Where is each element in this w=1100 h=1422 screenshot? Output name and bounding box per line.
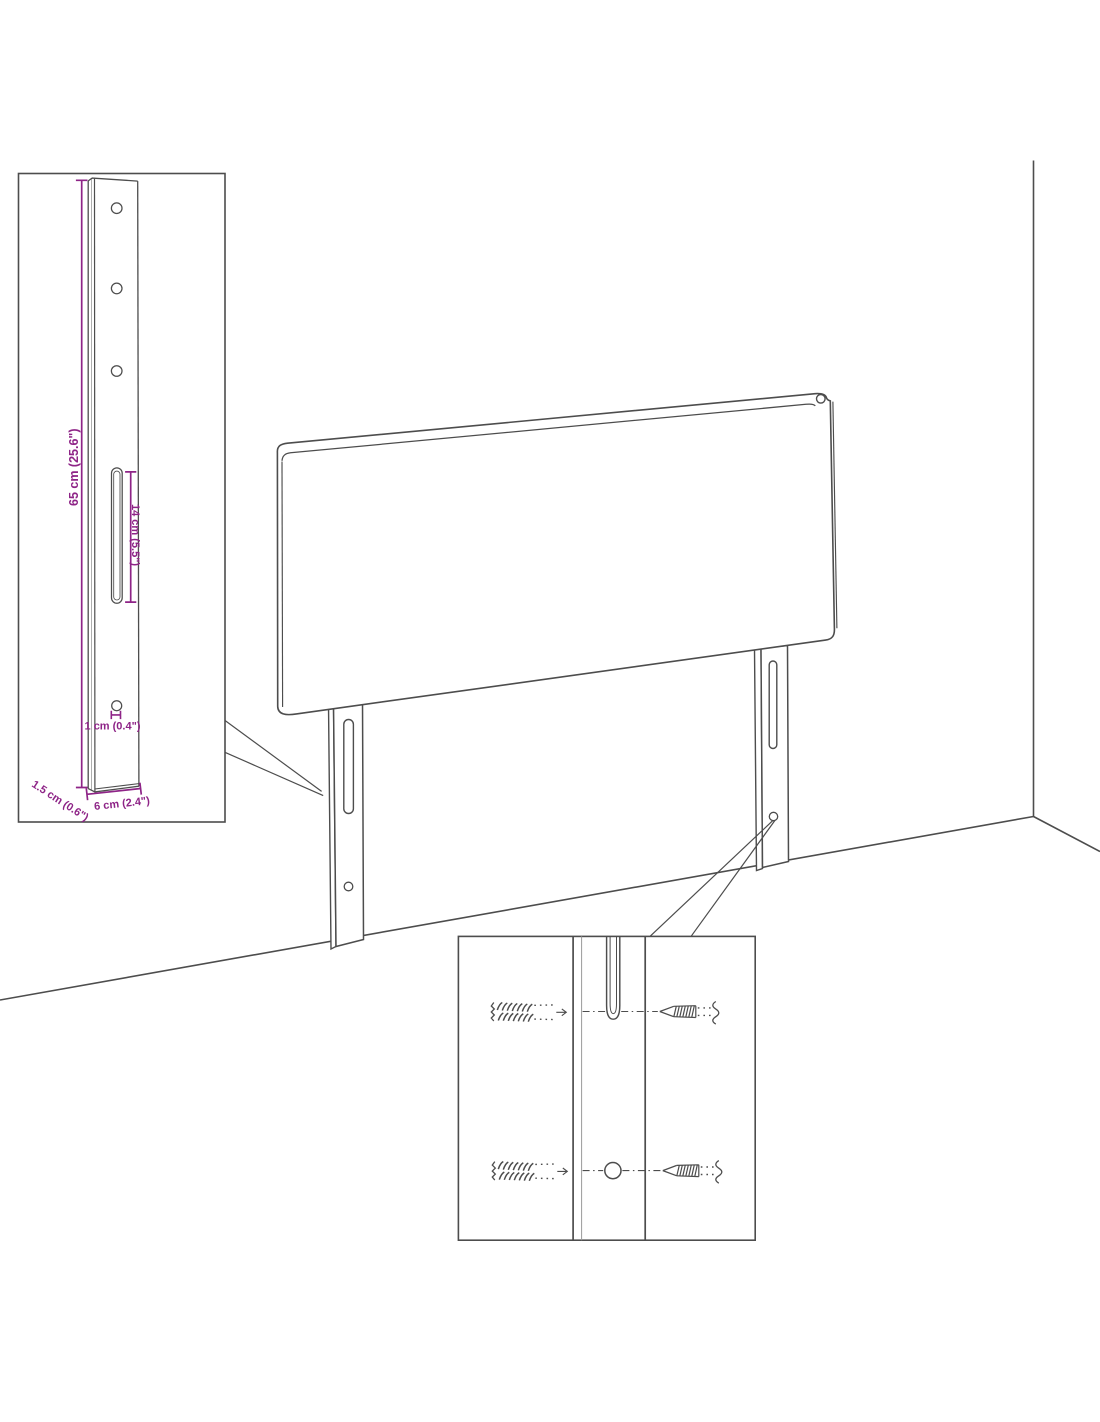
headboard-left-edge-inner [282,462,283,708]
headboard-top-right-curl [817,395,826,404]
left-leg-hole [344,882,353,891]
total-height-label: 65 cm (25.6") [67,429,81,507]
right-leg-hole [769,812,777,820]
leg-hole-1 [111,203,122,214]
hole-callout-leader-left [650,821,773,937]
slot-length-label: 14 cm (5.5") [129,504,141,566]
headboard [277,394,837,715]
leg-hole-3 [111,366,122,377]
assembly-diagram: 65 cm (25.6") 14 cm (5.5") 1 cm (0.4") 1… [0,0,1100,1422]
mounting-detail-callout [458,936,755,1240]
callout-leader-lines [225,721,775,937]
leg-detail-callout: 65 cm (25.6") 14 cm (5.5") 1 cm (0.4") 1… [19,174,226,825]
leg-hole-2 [111,283,122,294]
leg-hole-4 [112,701,122,711]
headboard-outline [277,394,834,715]
leg-slot-outer [112,468,123,603]
assembly-diagram-page: 65 cm (25.6") 14 cm (5.5") 1 cm (0.4") 1… [0,0,1100,1422]
strip-hole [605,1163,621,1179]
floor-line-right [1034,817,1100,852]
leg-callout-leader-top [225,721,321,792]
left-leg-slot [344,720,354,814]
hole-callout-leader-right [691,821,775,937]
hole-diameter-label: 1 cm (0.4") [85,721,141,733]
left-mounting-leg [329,700,364,949]
leg-callout-leader-bottom [225,752,323,795]
right-leg-slot [769,661,777,749]
right-mounting-leg [755,646,789,871]
